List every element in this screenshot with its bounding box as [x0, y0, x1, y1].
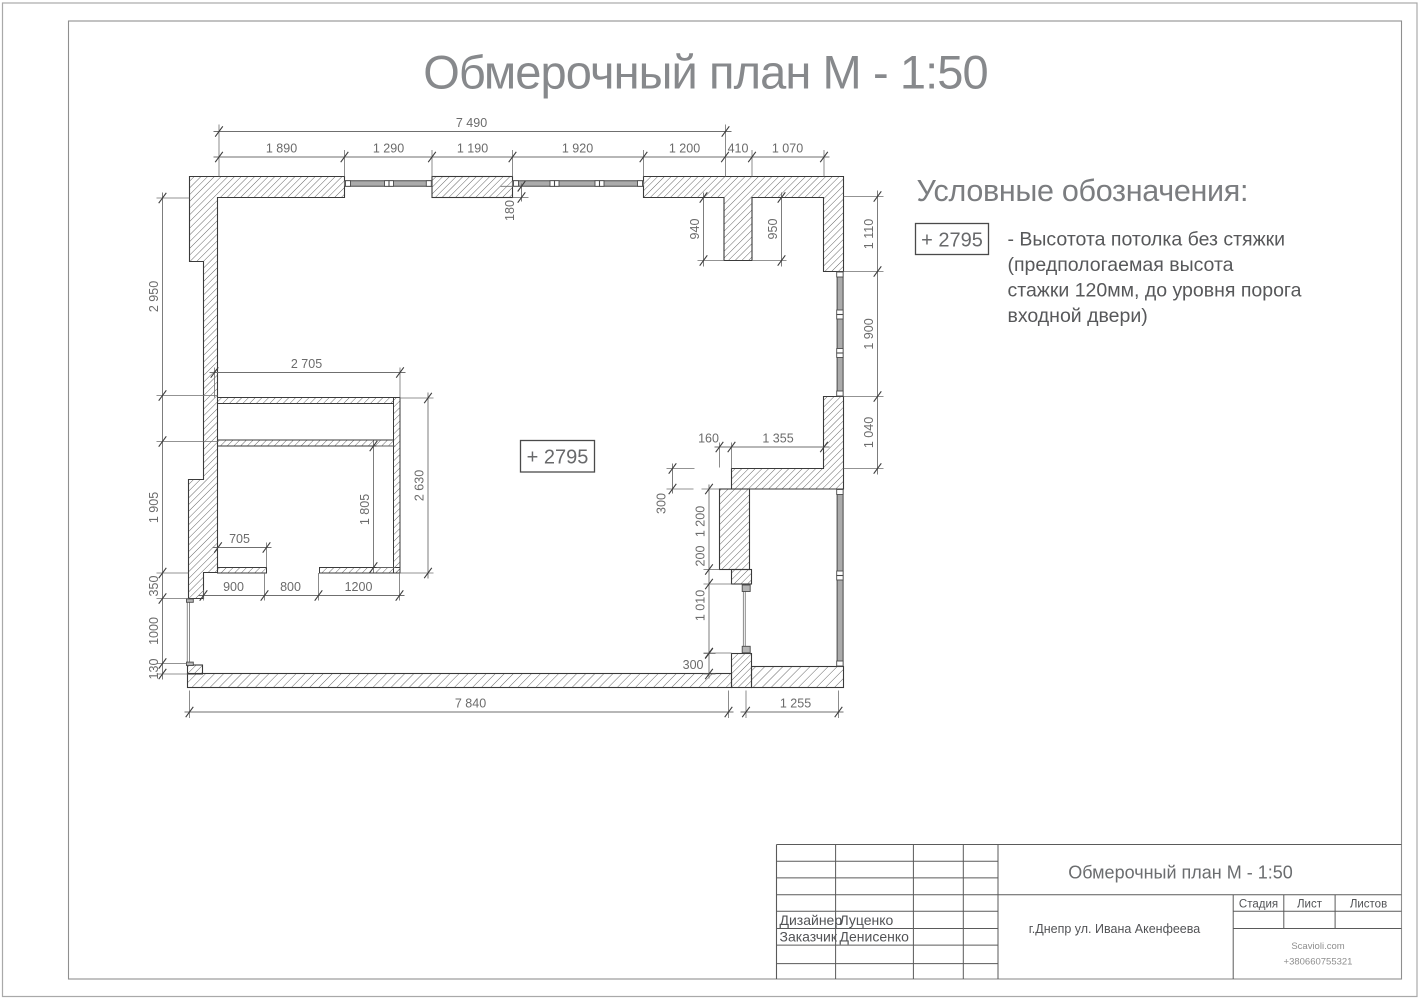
svg-text:200: 200	[694, 546, 708, 567]
svg-text:160: 160	[698, 432, 719, 446]
svg-text:+380660755321: +380660755321	[1284, 957, 1353, 968]
svg-text:2 630: 2 630	[413, 470, 427, 501]
svg-text:Стадия: Стадия	[1239, 899, 1278, 911]
svg-text:1 190: 1 190	[457, 142, 488, 156]
svg-text:1 805: 1 805	[358, 494, 372, 525]
svg-text:1 200: 1 200	[694, 506, 708, 537]
svg-text:1 040: 1 040	[862, 417, 876, 448]
svg-text:Обмерочный план М - 1:50: Обмерочный план М - 1:50	[1068, 863, 1292, 883]
svg-text:900: 900	[223, 580, 244, 594]
svg-text:130: 130	[147, 659, 161, 680]
svg-text:1 200: 1 200	[669, 142, 700, 156]
svg-text:1 010: 1 010	[694, 590, 708, 621]
svg-text:2 950: 2 950	[147, 281, 161, 312]
svg-text:1 290: 1 290	[373, 142, 404, 156]
svg-text:входной двери): входной двери)	[1008, 305, 1148, 327]
svg-text:г.Днепр ул. Ивана Акенфеева: г.Днепр ул. Ивана Акенфеева	[1029, 922, 1200, 936]
svg-text:Лист: Лист	[1297, 899, 1323, 911]
svg-text:Луценко: Луценко	[840, 912, 894, 928]
svg-text:1 905: 1 905	[147, 492, 161, 523]
svg-text:705: 705	[229, 532, 250, 546]
svg-text:Условные обозначения:: Условные обозначения:	[917, 174, 1249, 208]
svg-text:Денисенко: Денисенко	[840, 929, 910, 945]
svg-text:Дизайнер: Дизайнер	[780, 912, 843, 928]
svg-text:7 490: 7 490	[456, 116, 487, 130]
svg-text:1 255: 1 255	[780, 697, 811, 711]
svg-text:1 890: 1 890	[266, 142, 297, 156]
svg-text:1 110: 1 110	[862, 219, 876, 249]
svg-text:2 705: 2 705	[291, 357, 322, 371]
svg-text:Обмерочный план М - 1:50: Обмерочный план М - 1:50	[423, 46, 988, 99]
svg-text:(предпологаемая высота: (предпологаемая высота	[1008, 254, 1234, 276]
svg-text:7 840: 7 840	[455, 697, 486, 711]
svg-text:Заказчик: Заказчик	[780, 929, 838, 945]
svg-text:+ 2795: + 2795	[527, 447, 589, 469]
svg-text:1200: 1200	[345, 580, 373, 594]
svg-text:1 920: 1 920	[562, 142, 593, 156]
svg-text:940: 940	[688, 219, 702, 240]
svg-text:+ 2795: + 2795	[921, 230, 983, 252]
svg-text:950: 950	[766, 219, 780, 240]
svg-text:1000: 1000	[147, 617, 161, 645]
svg-text:350: 350	[147, 576, 161, 597]
svg-text:1 900: 1 900	[862, 318, 876, 349]
svg-text:1 355: 1 355	[762, 432, 793, 446]
svg-text:- Высотота потолка без стяжки: - Высотота потолка без стяжки	[1008, 229, 1286, 251]
svg-text:300: 300	[655, 493, 669, 514]
svg-text:410: 410	[728, 142, 749, 156]
svg-text:180: 180	[503, 200, 517, 221]
svg-text:Листов: Листов	[1350, 899, 1387, 911]
svg-text:300: 300	[683, 658, 704, 672]
svg-text:стажки 120мм, до уровня порога: стажки 120мм, до уровня порога	[1008, 280, 1302, 302]
svg-text:800: 800	[280, 580, 301, 594]
svg-text:1 070: 1 070	[772, 142, 803, 156]
svg-text:Scavioli.com: Scavioli.com	[1291, 941, 1344, 952]
